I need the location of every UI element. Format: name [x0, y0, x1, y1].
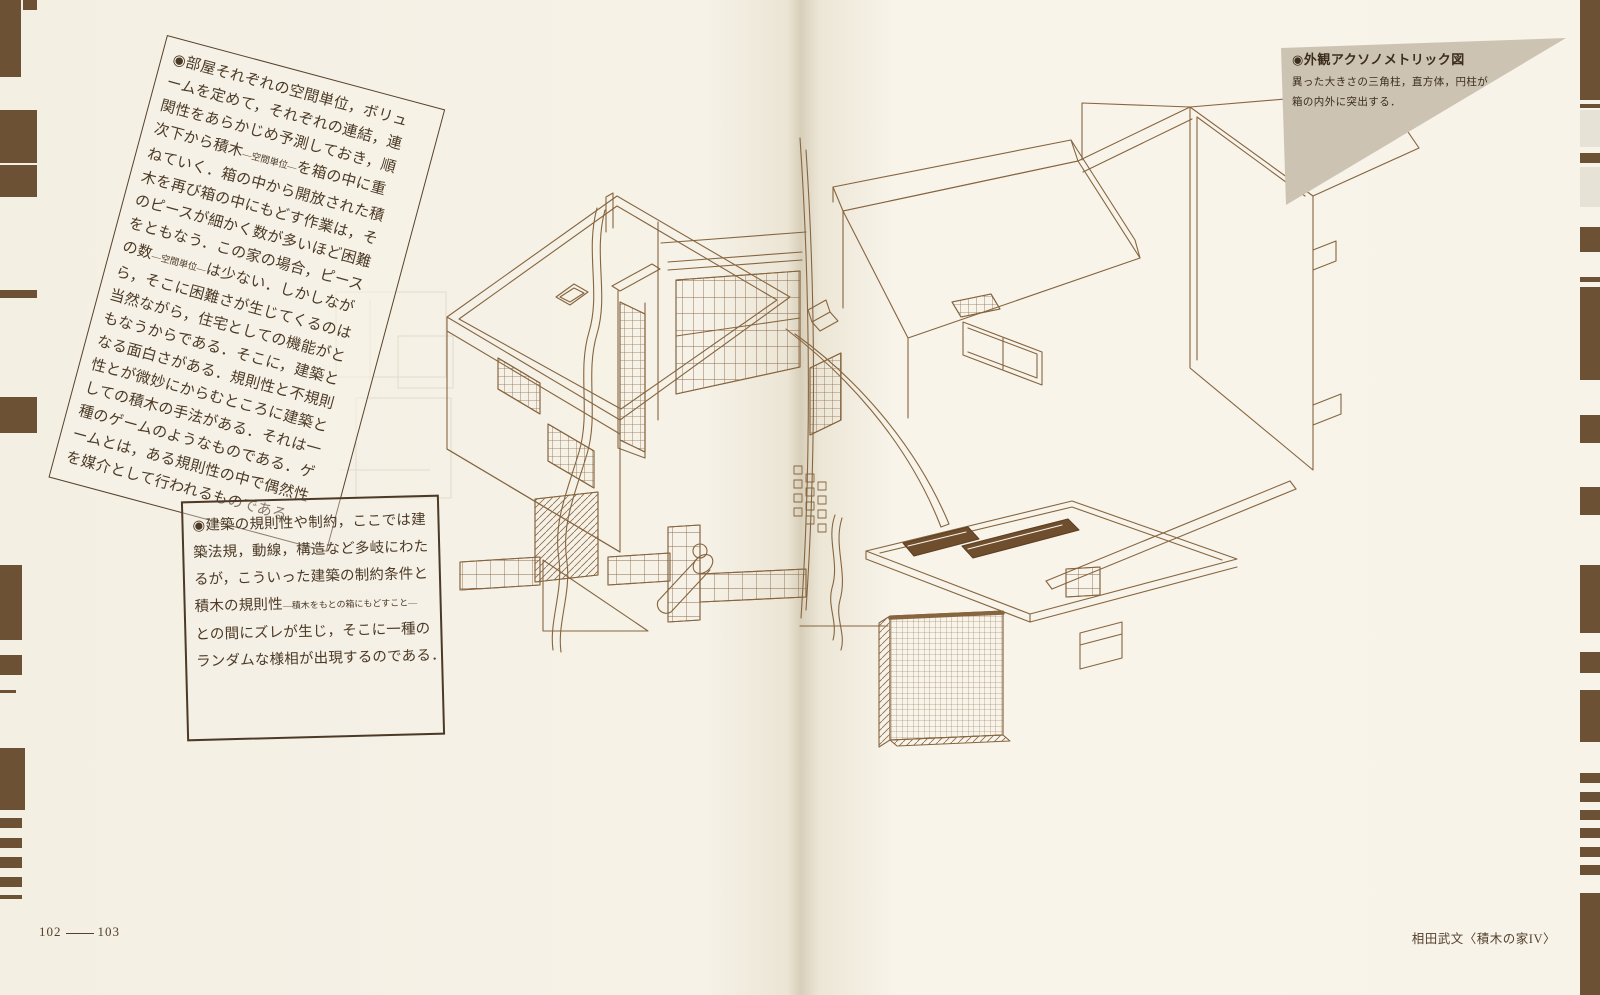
credit-line: 相田武文〈積木の家IV〉: [1412, 928, 1556, 947]
book-spread: ◉部屋それぞれの空間単位，ボリュームを定めて，それぞれの連結，連関性をあらかじめ…: [0, 0, 1600, 995]
figure-caption-title: ◉外観アクソノメトリック図: [1292, 49, 1532, 68]
note-line: ランダムな様相が出現するのである．: [196, 643, 433, 676]
folio-left: 102: [39, 924, 62, 940]
center-tower: [612, 264, 660, 458]
figure-caption: ◉外観アクソノメトリック図 異った大きさの三角柱，直方体，円柱が箱の内外に突出す…: [1292, 49, 1532, 112]
fine-grid-cube: [879, 611, 1010, 747]
right-window-band: [963, 322, 1042, 385]
right-edge-stripes: [1580, 0, 1600, 995]
figure-caption-body: 異った大きさの三角柱，直方体，円柱が箱の内外に突出する．: [1292, 73, 1532, 112]
folio-right: 103: [98, 924, 121, 940]
page-folio: 102 103: [39, 924, 120, 940]
central-roof: [808, 140, 1140, 418]
folio-rule: [66, 933, 94, 934]
boxed-note: ◉建築の規則性や制約，ここでは建築法規，動線，構造など多岐にわたるが，こういった…: [181, 495, 445, 742]
left-edge-stripes: [0, 0, 37, 899]
note-line: 異った大きさの三角柱，直方体，円柱が: [1292, 73, 1532, 93]
glazed-grid-wall: [658, 222, 806, 420]
fold-side-grids: [794, 353, 841, 532]
note-line: 箱の内外に突出する．: [1292, 93, 1532, 113]
